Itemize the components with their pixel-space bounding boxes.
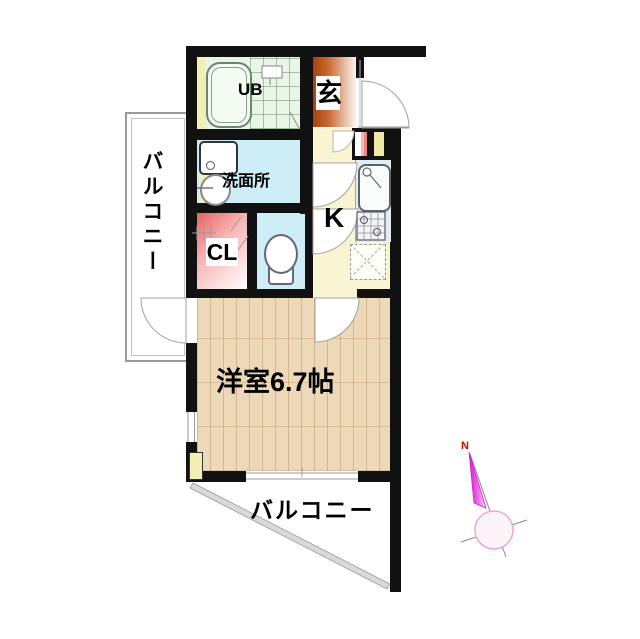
balcony-door-opening	[186, 298, 197, 343]
wall-below-cl-toilet	[186, 289, 313, 298]
wall-entrance-stub	[356, 57, 364, 78]
refrigerator-space-symbol	[350, 244, 386, 280]
compass-axis-line	[470, 454, 506, 557]
wall-below-kitchen	[357, 289, 391, 298]
balcony-left-label: バルコニー	[136, 150, 166, 275]
entrance-door-arc	[362, 81, 409, 128]
ub-label: UB	[238, 80, 263, 100]
kitchen-label: K	[324, 202, 344, 234]
pipe-space-strip	[197, 57, 206, 129]
meter-box-red-stripe	[364, 132, 367, 156]
floor-plan-canvas: UB 玄 洗面所 CL K 洋室6.7帖 バルコニー バルコニー N	[0, 0, 640, 639]
bottom-window	[246, 471, 358, 482]
main-room-label: 洋室6.7帖	[216, 360, 335, 399]
compass-north-label: N	[461, 440, 469, 452]
compass-circle	[475, 511, 513, 549]
wall-left-mid	[186, 343, 197, 412]
wall-washroom-bottom	[186, 203, 313, 213]
corner-pipe-space	[189, 452, 203, 480]
entrance-label: 玄	[316, 76, 340, 110]
toilet-bowl-symbol	[264, 234, 298, 274]
compass-needle	[469, 452, 486, 508]
wall-cl-toilet	[247, 213, 257, 289]
meter-box-yellow	[374, 132, 384, 156]
kitchen-sink-symbol	[358, 164, 391, 212]
wall-left-upper	[186, 46, 197, 298]
washroom-label: 洗面所	[222, 167, 270, 191]
washing-machine-drain-icon	[206, 161, 215, 170]
closet-label: CL	[206, 238, 238, 266]
wall-right	[390, 128, 401, 592]
side-window	[186, 412, 197, 442]
wall-toilet-right	[305, 213, 313, 289]
wall-below-ub	[186, 129, 313, 140]
compass-cross-line	[461, 520, 527, 542]
wall-top	[186, 46, 426, 57]
balcony-bottom-label: バルコニー	[250, 491, 375, 525]
